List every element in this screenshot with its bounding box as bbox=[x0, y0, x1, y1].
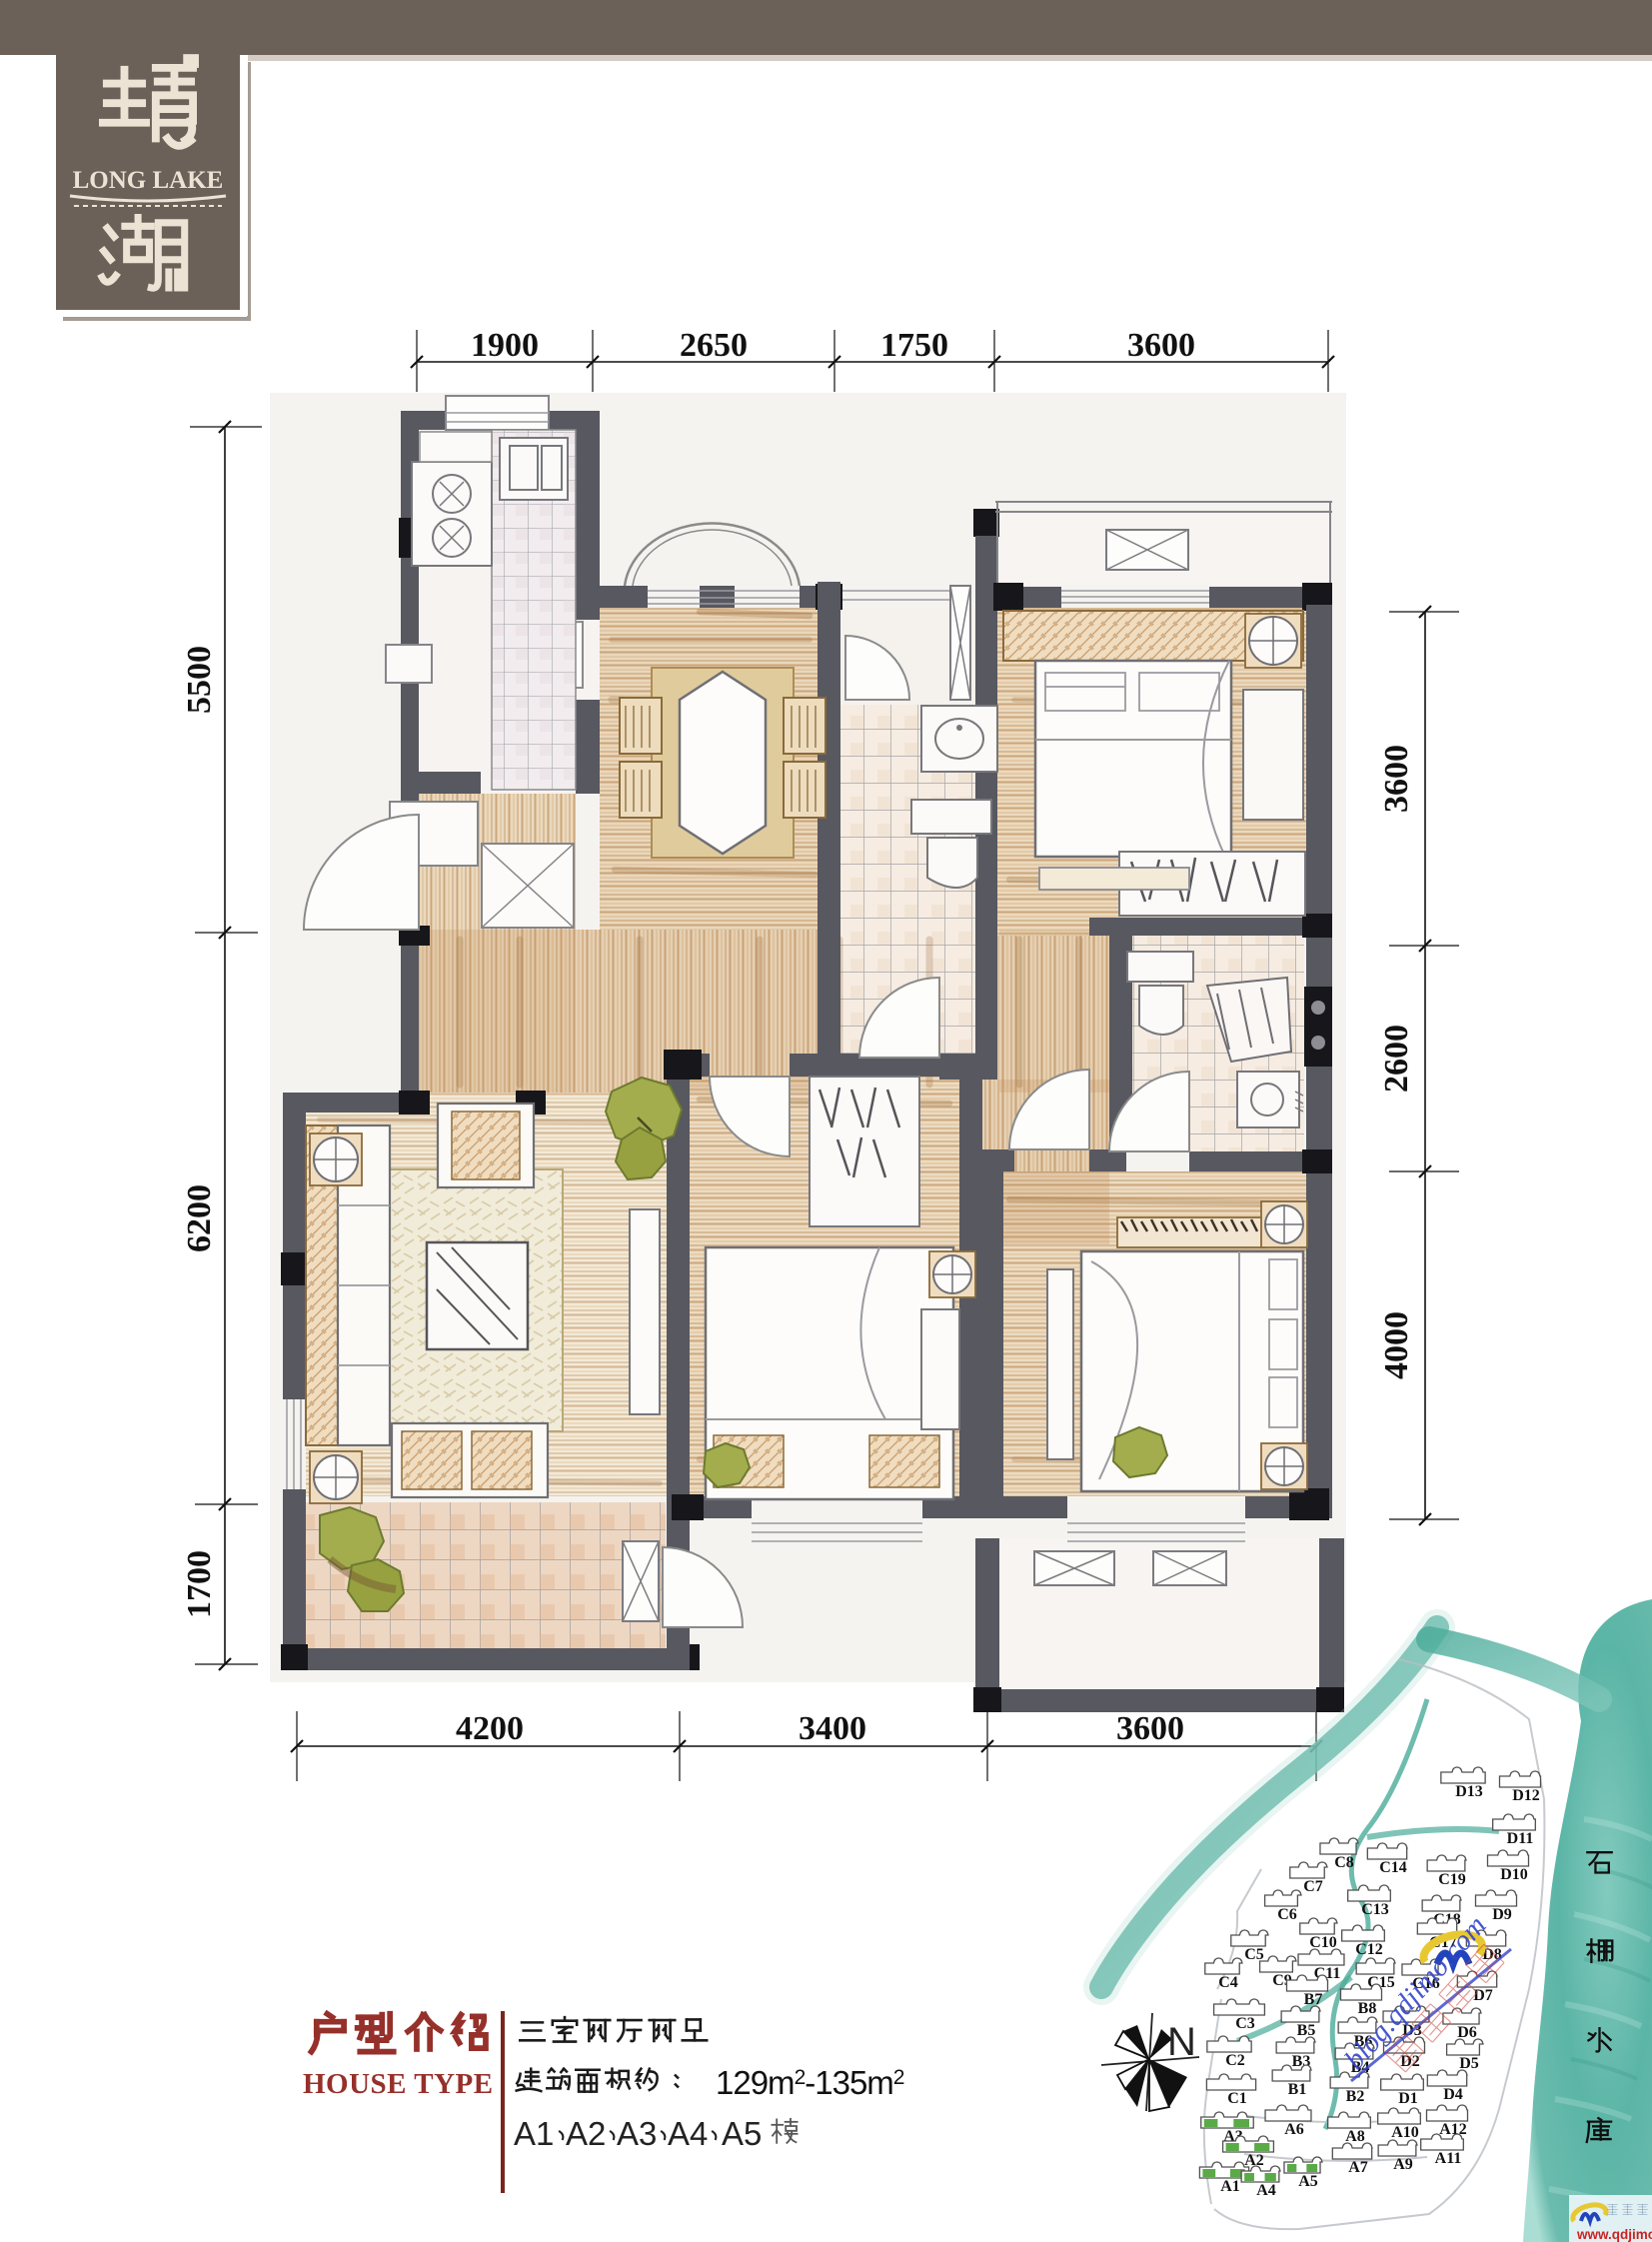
svg-text:A4: A4 bbox=[1256, 2182, 1276, 2199]
svg-text:3600: 3600 bbox=[1378, 745, 1415, 813]
svg-text:2600: 2600 bbox=[1378, 1025, 1415, 1093]
svg-text:A6: A6 bbox=[1284, 2121, 1304, 2138]
svg-text:6200: 6200 bbox=[181, 1184, 218, 1252]
svg-text:A2: A2 bbox=[566, 2115, 606, 2152]
svg-text:D13: D13 bbox=[1455, 1783, 1483, 1800]
svg-text:D11: D11 bbox=[1507, 1830, 1534, 1847]
svg-text:A5: A5 bbox=[722, 2115, 762, 2152]
svg-text:HOUSE TYPE: HOUSE TYPE bbox=[303, 2068, 494, 2100]
svg-text:1700: 1700 bbox=[181, 1550, 218, 1618]
svg-text:D12: D12 bbox=[1512, 1787, 1540, 1804]
svg-text:D7: D7 bbox=[1473, 1987, 1493, 2004]
svg-text:A3: A3 bbox=[617, 2115, 657, 2152]
svg-text:C10: C10 bbox=[1309, 1934, 1337, 1951]
svg-text:129m2-135m2: 129m2-135m2 bbox=[716, 2064, 904, 2101]
svg-text:D10: D10 bbox=[1500, 1866, 1528, 1883]
svg-text:C7: C7 bbox=[1303, 1878, 1323, 1895]
svg-text:D1: D1 bbox=[1398, 2090, 1418, 2107]
svg-text:A11: A11 bbox=[1435, 2150, 1462, 2167]
svg-text:A7: A7 bbox=[1348, 2159, 1368, 2176]
svg-text:B2: B2 bbox=[1346, 2088, 1365, 2105]
svg-text:B1: B1 bbox=[1288, 2081, 1307, 2098]
svg-text:C12: C12 bbox=[1355, 1941, 1383, 1958]
svg-text:LONG LAKE: LONG LAKE bbox=[73, 167, 224, 194]
svg-text:C1: C1 bbox=[1227, 2090, 1247, 2107]
svg-text:A5: A5 bbox=[1298, 2173, 1318, 2190]
svg-text:D9: D9 bbox=[1492, 1906, 1512, 1923]
svg-text:N: N bbox=[1167, 2020, 1196, 2064]
svg-text:D4: D4 bbox=[1443, 2086, 1463, 2103]
svg-text:1900: 1900 bbox=[471, 327, 539, 364]
svg-text:B7: B7 bbox=[1304, 1991, 1323, 2008]
svg-text:A9: A9 bbox=[1393, 2156, 1413, 2173]
svg-text:C19: C19 bbox=[1438, 1871, 1466, 1888]
svg-text:3600: 3600 bbox=[1116, 1710, 1184, 1747]
svg-text:A4: A4 bbox=[668, 2115, 708, 2152]
svg-text:3400: 3400 bbox=[799, 1710, 866, 1747]
svg-text:C14: C14 bbox=[1379, 1859, 1407, 1876]
svg-text:3600: 3600 bbox=[1127, 327, 1195, 364]
svg-text:www.qdjimo.com: www.qdjimo.com bbox=[1576, 2227, 1652, 2242]
svg-text:C6: C6 bbox=[1277, 1906, 1297, 1923]
svg-text:A1: A1 bbox=[514, 2115, 554, 2152]
svg-text:A10: A10 bbox=[1391, 2124, 1419, 2141]
svg-text:A1: A1 bbox=[1220, 2178, 1240, 2195]
svg-text:C2: C2 bbox=[1225, 2052, 1245, 2069]
svg-text:B5: B5 bbox=[1297, 2022, 1316, 2039]
svg-text:4000: 4000 bbox=[1378, 1311, 1415, 1379]
svg-text:C3: C3 bbox=[1235, 2015, 1255, 2032]
svg-text:C8: C8 bbox=[1334, 1854, 1354, 1871]
svg-text:2650: 2650 bbox=[680, 327, 748, 364]
svg-text:5500: 5500 bbox=[181, 646, 218, 714]
svg-text:1750: 1750 bbox=[880, 327, 948, 364]
svg-text:4200: 4200 bbox=[456, 1710, 524, 1747]
svg-text:C13: C13 bbox=[1361, 1901, 1389, 1918]
svg-text:C4: C4 bbox=[1218, 1974, 1238, 1991]
